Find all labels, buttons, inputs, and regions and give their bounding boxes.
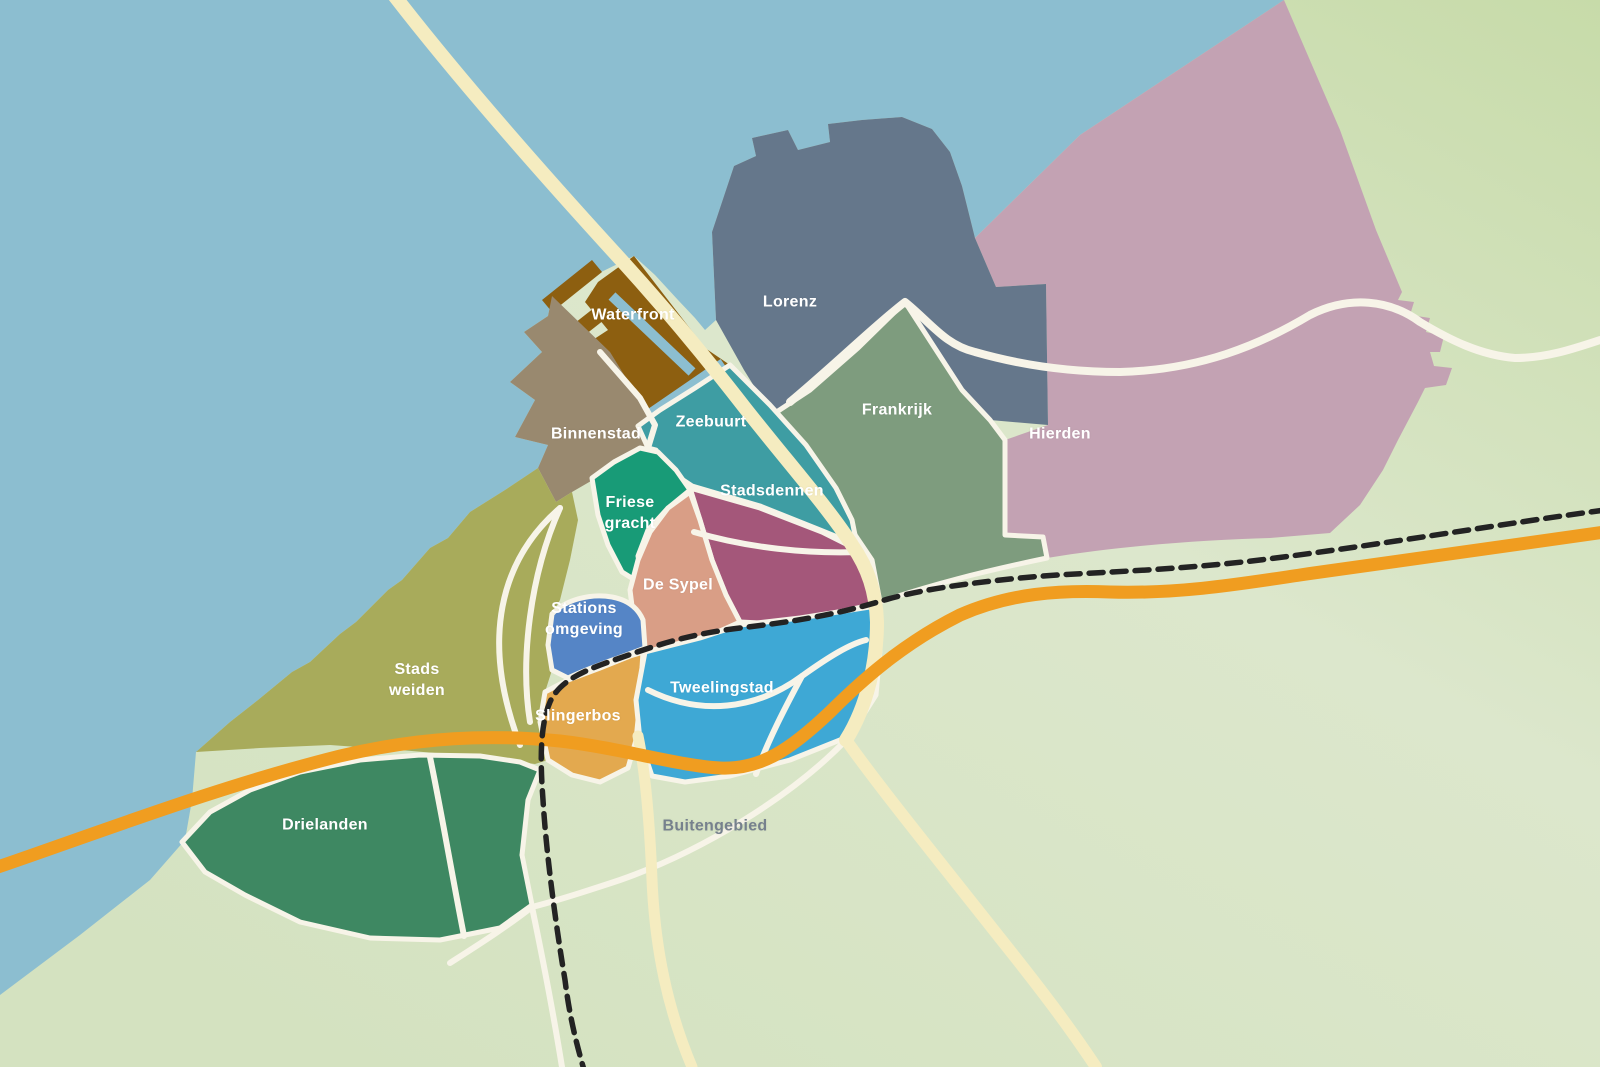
harderwijk-district-map: Hierden Lorenz Frankrijk Waterfront Binn… (0, 0, 1600, 1067)
map-canvas (0, 0, 1600, 1067)
